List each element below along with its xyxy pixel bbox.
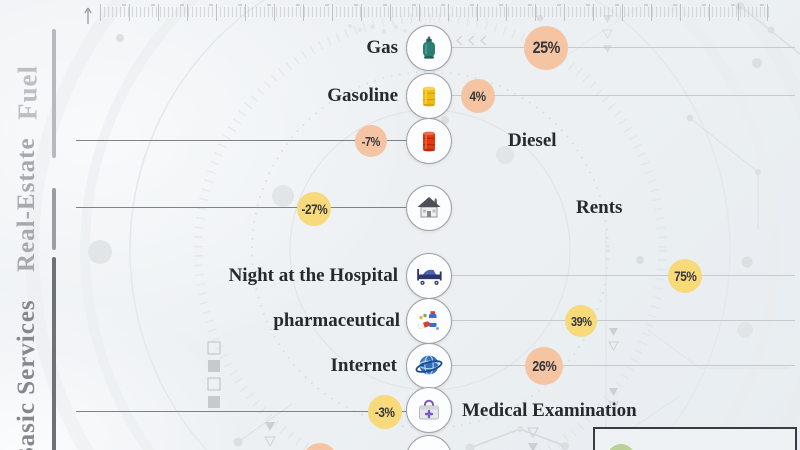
diesel-icon-circle [406,118,452,164]
value-badge-gasoline: 4% [461,79,495,113]
pharmaceutical-icon-circle [406,298,452,344]
legend-marker-green [607,444,635,450]
medical-kit-icon [414,395,444,425]
value-badge-pharmaceutical: 39% [565,305,597,337]
medical-examination-icon-circle [406,387,452,433]
row-line-gas [450,47,795,48]
hospital-bed-icon [414,261,444,291]
background-decoration [0,0,800,450]
house-icon [414,193,444,223]
gas-cylinder-icon [415,34,443,62]
section-label-basic-services: Basic Services [10,286,44,450]
row-line-internet [450,365,795,366]
row-line-gasoline [450,95,795,96]
row-label-hospital: Night at the Hospital [229,265,398,287]
ruler-decoration [100,4,772,21]
row-label-diesel: Diesel [508,130,557,152]
value-badge-rents: -27% [297,192,331,226]
value-badge-gas: 25% [524,26,568,70]
value-badge-hospital: 75% [668,259,702,293]
value-badge-medical-examination: -3% [368,395,402,429]
internet-icon-circle [406,343,452,389]
infographic-canvas: Fuel Real-Estate Basic Services [0,0,800,450]
section-bar-real-estate [52,188,56,250]
up-arrow-icon [82,5,94,25]
row-line-medical-examination [76,411,408,412]
row-label-rents: Rents [576,197,622,219]
value-badge-diesel: -7% [355,125,387,157]
bar-chart-icon [414,443,444,450]
section-label-fuel: Fuel [12,62,44,124]
hospital-icon-circle [406,253,452,299]
row-label-medical-examination: Medical Examination [462,400,637,422]
pills-icon [414,306,444,336]
row-line-hospital [450,275,795,276]
row-label-gas: Gas [366,37,398,59]
row-label-gasoline: Gasoline [327,85,398,107]
rents-icon-circle [406,185,452,231]
globe-icon [414,351,444,381]
gasoline-icon-circle [406,73,452,119]
oil-barrel-red-icon [415,127,443,155]
row-label-internet: Internet [331,355,397,377]
value-badge-internet: 26% [525,347,563,385]
section-bar-fuel [52,29,56,158]
row-label-pharmaceutical: pharmaceutical [273,310,400,332]
section-bar-basic-services [52,257,56,450]
oil-barrel-yellow-icon [415,82,443,110]
legend-box [593,427,797,450]
gas-icon-circle [406,25,452,71]
row-line-pharmaceutical [450,320,795,321]
section-label-real-estate: Real-Estate [10,138,44,272]
row-line-rents [76,207,408,208]
